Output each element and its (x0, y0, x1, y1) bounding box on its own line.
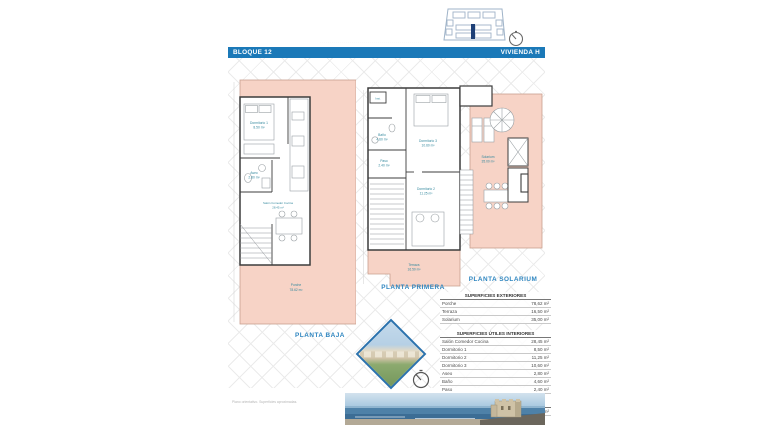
room-area-dormitorio2: 11.25 m² (420, 192, 434, 196)
room-label-dormitorio1: Dormitorio 1 (250, 121, 268, 125)
room-label-dormitorio3: Dormitorio 3 (419, 139, 437, 143)
stairs (460, 170, 473, 234)
caption-planta-baja: PLANTA BAJA (265, 332, 375, 339)
unit-label: VIVIENDA H (501, 49, 540, 56)
floor-plan-planta-primera: Inst. Baño 4.60 m² Dormitorio 3 10.60 m²… (362, 84, 466, 288)
floor-plan-planta-solarium: Solarium 35.00 m² (458, 84, 552, 270)
compass-icon (506, 28, 526, 48)
block-label: BLOQUE 12 (233, 49, 272, 56)
row-value: 35,00 m² (531, 317, 549, 322)
header-bar: BLOQUE 12 VIVIENDA H (228, 47, 545, 58)
row-label: Dormitorio 3 (442, 363, 467, 368)
table-row: Aseo 2,80 m² (440, 370, 551, 378)
faint-watermark-text: ········································… (302, 40, 442, 44)
row-label: Solarium (442, 317, 460, 322)
row-label: Dormitorio 1 (442, 347, 467, 352)
row-label: Baño (442, 379, 453, 384)
shaft (508, 138, 528, 202)
row-value: 11,25 m² (532, 355, 549, 360)
room-label-paso: Paso (380, 159, 388, 163)
site-key-plan (440, 6, 510, 46)
room-area-porche: 78.62 m² (289, 288, 303, 292)
row-value: 4,60 m² (534, 379, 549, 384)
row-label: Dormitorio 2 (442, 355, 467, 360)
room-area-paso: 2.40 m² (378, 164, 390, 168)
room-area-dormitorio1: 8.50 m² (253, 126, 265, 130)
room-area-salon: 28.45 m² (272, 206, 283, 210)
row-value: 78,62 m² (531, 301, 549, 306)
room-label-aseo: Aseo (250, 171, 258, 175)
fine-print: Plano orientativo. Superficies aproximad… (232, 400, 332, 404)
room-label-terraza: Terraza (409, 263, 420, 267)
caption-planta-primera: PLANTA PRIMERA (358, 284, 468, 291)
room-area-terraza: 16.50 m² (407, 268, 421, 272)
room-area-aseo: 2.80 m² (248, 176, 260, 180)
room-label-salon: Salón Comedor Cocina (263, 201, 293, 205)
table-superficies-interiores: SUPERFICIES ÚTILES INTERIORES Salón Come… (440, 330, 551, 394)
table-row: Dormitorio 2 11,25 m² (440, 354, 551, 362)
row-label: Salón Comedor Cocina (442, 339, 489, 344)
row-value: 2,80 m² (534, 371, 549, 376)
row-value: 10,60 m² (531, 363, 549, 368)
row-label: Terraza (442, 309, 457, 314)
room-label-bano: Baño (378, 133, 386, 137)
room-label-porche: Porche (291, 283, 302, 287)
room-label-dormitorio2: Dormitorio 2 (417, 187, 435, 191)
row-label: Porche (442, 301, 456, 306)
floor-plan-planta-baja: Dormitorio 1 8.50 m² Aseo 2.80 m² Salón … (232, 78, 356, 326)
beach-photo (345, 393, 545, 425)
table-row: Dormitorio 1 8,50 m² (440, 346, 551, 354)
row-label: Aseo (442, 371, 452, 376)
table-row: Solarium 35,00 m² (440, 316, 551, 324)
room-area-solarium: 35.00 m² (481, 160, 495, 164)
row-label: Paso (442, 387, 452, 392)
row-value: 28,45 m² (531, 339, 549, 344)
stair-room (460, 86, 492, 106)
render-buildings (356, 352, 427, 358)
table-row: Terraza 16,50 m² (440, 308, 551, 316)
table-row: Baño 4,60 m² (440, 378, 551, 386)
room-area-dormitorio3: 10.60 m² (421, 144, 435, 148)
tower (491, 399, 521, 417)
table-row: Porche 78,62 m² (440, 300, 551, 308)
plan-sheet: ········································… (0, 0, 770, 433)
caption-planta-solarium: PLANTA SOLARIUM (448, 276, 558, 283)
table-row: Dormitorio 3 10,60 m² (440, 362, 551, 370)
highlighted-unit (471, 24, 475, 39)
table-title: SUPERFICIES ÚTILES INTERIORES (440, 330, 551, 338)
room-label-solarium: Solarium (481, 155, 494, 159)
row-value: 8,50 m² (534, 347, 549, 352)
compass-icon (408, 366, 434, 392)
room-area-bano: 4.60 m² (376, 138, 388, 142)
table-superficies-exteriores: SUPERFICIES EXTERIORES Porche 78,62 m² T… (440, 292, 551, 324)
row-value: 2,40 m² (534, 387, 549, 392)
table-row: Salón Comedor Cocina 28,45 m² (440, 338, 551, 346)
row-value: 16,50 m² (531, 309, 549, 314)
table-title: SUPERFICIES EXTERIORES (440, 292, 551, 300)
room-label-inst: Inst. (375, 97, 381, 101)
